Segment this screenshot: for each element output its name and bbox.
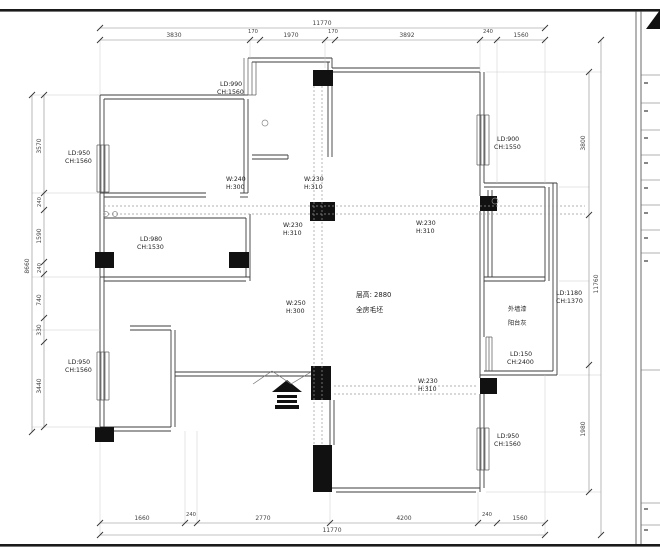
dim-top-seg-1: 170 xyxy=(248,29,258,35)
window-label-balcony-door-1: LD:150 xyxy=(510,351,532,358)
dim-left-seg-5: 330 xyxy=(36,324,43,336)
beam-label-4-2: H:300 xyxy=(286,308,305,315)
titleblock-dividers xyxy=(641,75,660,525)
note-balcony-wall-2: 阳台灰 xyxy=(508,319,527,327)
dim-bottom-overall: 11770 xyxy=(322,527,341,534)
window-label-balcony-door-2: CH:2400 xyxy=(507,359,534,366)
dim-top-seg-0: 3830 xyxy=(166,32,181,39)
window-label-left-upper-1: LD:950 xyxy=(68,150,90,157)
window-label-right-upper-1: LD:900 xyxy=(497,136,519,143)
beam-label-1-1: W:230 xyxy=(304,176,324,183)
entry-arrow-icon xyxy=(272,380,302,409)
dim-top-seg-2: 1970 xyxy=(283,32,298,39)
note-floor-height: 层高: 2880 xyxy=(356,290,391,299)
note-balcony-wall-1: 外墙漆 xyxy=(508,305,527,313)
note-finish: 全房毛坯 xyxy=(356,305,383,314)
dim-left-overall: 8660 xyxy=(24,258,31,273)
floor-plan-drawing: 11770 3830 170 1970 170 3892 240 1560 16… xyxy=(0,0,660,560)
dim-left-seg-1: 240 xyxy=(37,197,43,207)
dim-left-seg-2: 1590 xyxy=(36,228,43,243)
window-label-left-lower-2: CH:1560 xyxy=(65,367,92,374)
titleblock-text-fragments xyxy=(644,82,648,531)
dim-right-overall: 11760 xyxy=(593,274,600,293)
window-label-right-upper-2: CH:1550 xyxy=(494,144,521,151)
dim-left-seg-3: 240 xyxy=(37,263,43,273)
window-label-top-mid-1: LD:990 xyxy=(220,81,242,88)
dim-top-seg-5: 240 xyxy=(483,29,493,35)
floor-plan-canvas: 11770 3830 170 1970 170 3892 240 1560 16… xyxy=(0,0,660,560)
window-label-left-mid-2: CH:1530 xyxy=(137,244,164,251)
window-label-right-lower-2: CH:1560 xyxy=(494,441,521,448)
dim-left-seg-6: 3440 xyxy=(36,378,43,393)
window-label-left-lower-1: LD:950 xyxy=(68,359,90,366)
beam-label-2-2: H:310 xyxy=(283,230,302,237)
window-label-left-mid-1: LD:980 xyxy=(140,236,162,243)
dim-top-seg-3: 170 xyxy=(328,29,338,35)
window-label-bay-1: LD:1180 xyxy=(556,290,582,297)
window-label-top-mid-2: CH:1560 xyxy=(217,89,244,96)
dim-top-seg-6: 1560 xyxy=(513,32,528,39)
north-triangle-icon xyxy=(646,10,660,29)
dim-right-seg-0: 3800 xyxy=(580,135,587,150)
window-label-left-upper-2: CH:1560 xyxy=(65,158,92,165)
beam-label-2-1: W:230 xyxy=(283,222,303,229)
beam-label-5-1: W:230 xyxy=(418,378,438,385)
dim-bottom-seg-0: 1660 xyxy=(134,515,149,522)
dim-bottom-seg-5: 1560 xyxy=(512,515,527,522)
dim-bottom-seg-3: 4200 xyxy=(396,515,411,522)
beam-label-1-2: H:310 xyxy=(304,184,323,191)
walls xyxy=(100,58,557,492)
fixture-circles xyxy=(104,120,499,217)
beam-label-3-2: H:310 xyxy=(416,228,435,235)
dim-left-seg-0: 3570 xyxy=(36,138,43,153)
beam-label-5-2: H:310 xyxy=(418,386,437,393)
entry-door-swing xyxy=(253,371,311,384)
dim-bottom-seg-1: 240 xyxy=(186,512,196,518)
dim-right-seg-1: 1980 xyxy=(580,421,587,436)
beam-label-0-1: W:240 xyxy=(226,176,246,183)
beam-label-0-2: H:300 xyxy=(226,184,245,191)
window-label-bay-2: CH:1370 xyxy=(556,298,583,305)
dim-left-seg-4: 740 xyxy=(36,294,43,306)
beam-label-3-1: W:230 xyxy=(416,220,436,227)
plan-notes: 层高: 2880 全房毛坯 外墙漆 阳台灰 xyxy=(356,290,527,327)
window-label-right-lower-1: LD:950 xyxy=(497,433,519,440)
beam-label-4-1: W:250 xyxy=(286,300,306,307)
dim-bottom-seg-4: 240 xyxy=(482,512,492,518)
dim-bottom-seg-2: 2770 xyxy=(255,515,270,522)
dim-top-seg-4: 3892 xyxy=(399,32,414,39)
dim-top-overall: 11770 xyxy=(312,20,331,27)
